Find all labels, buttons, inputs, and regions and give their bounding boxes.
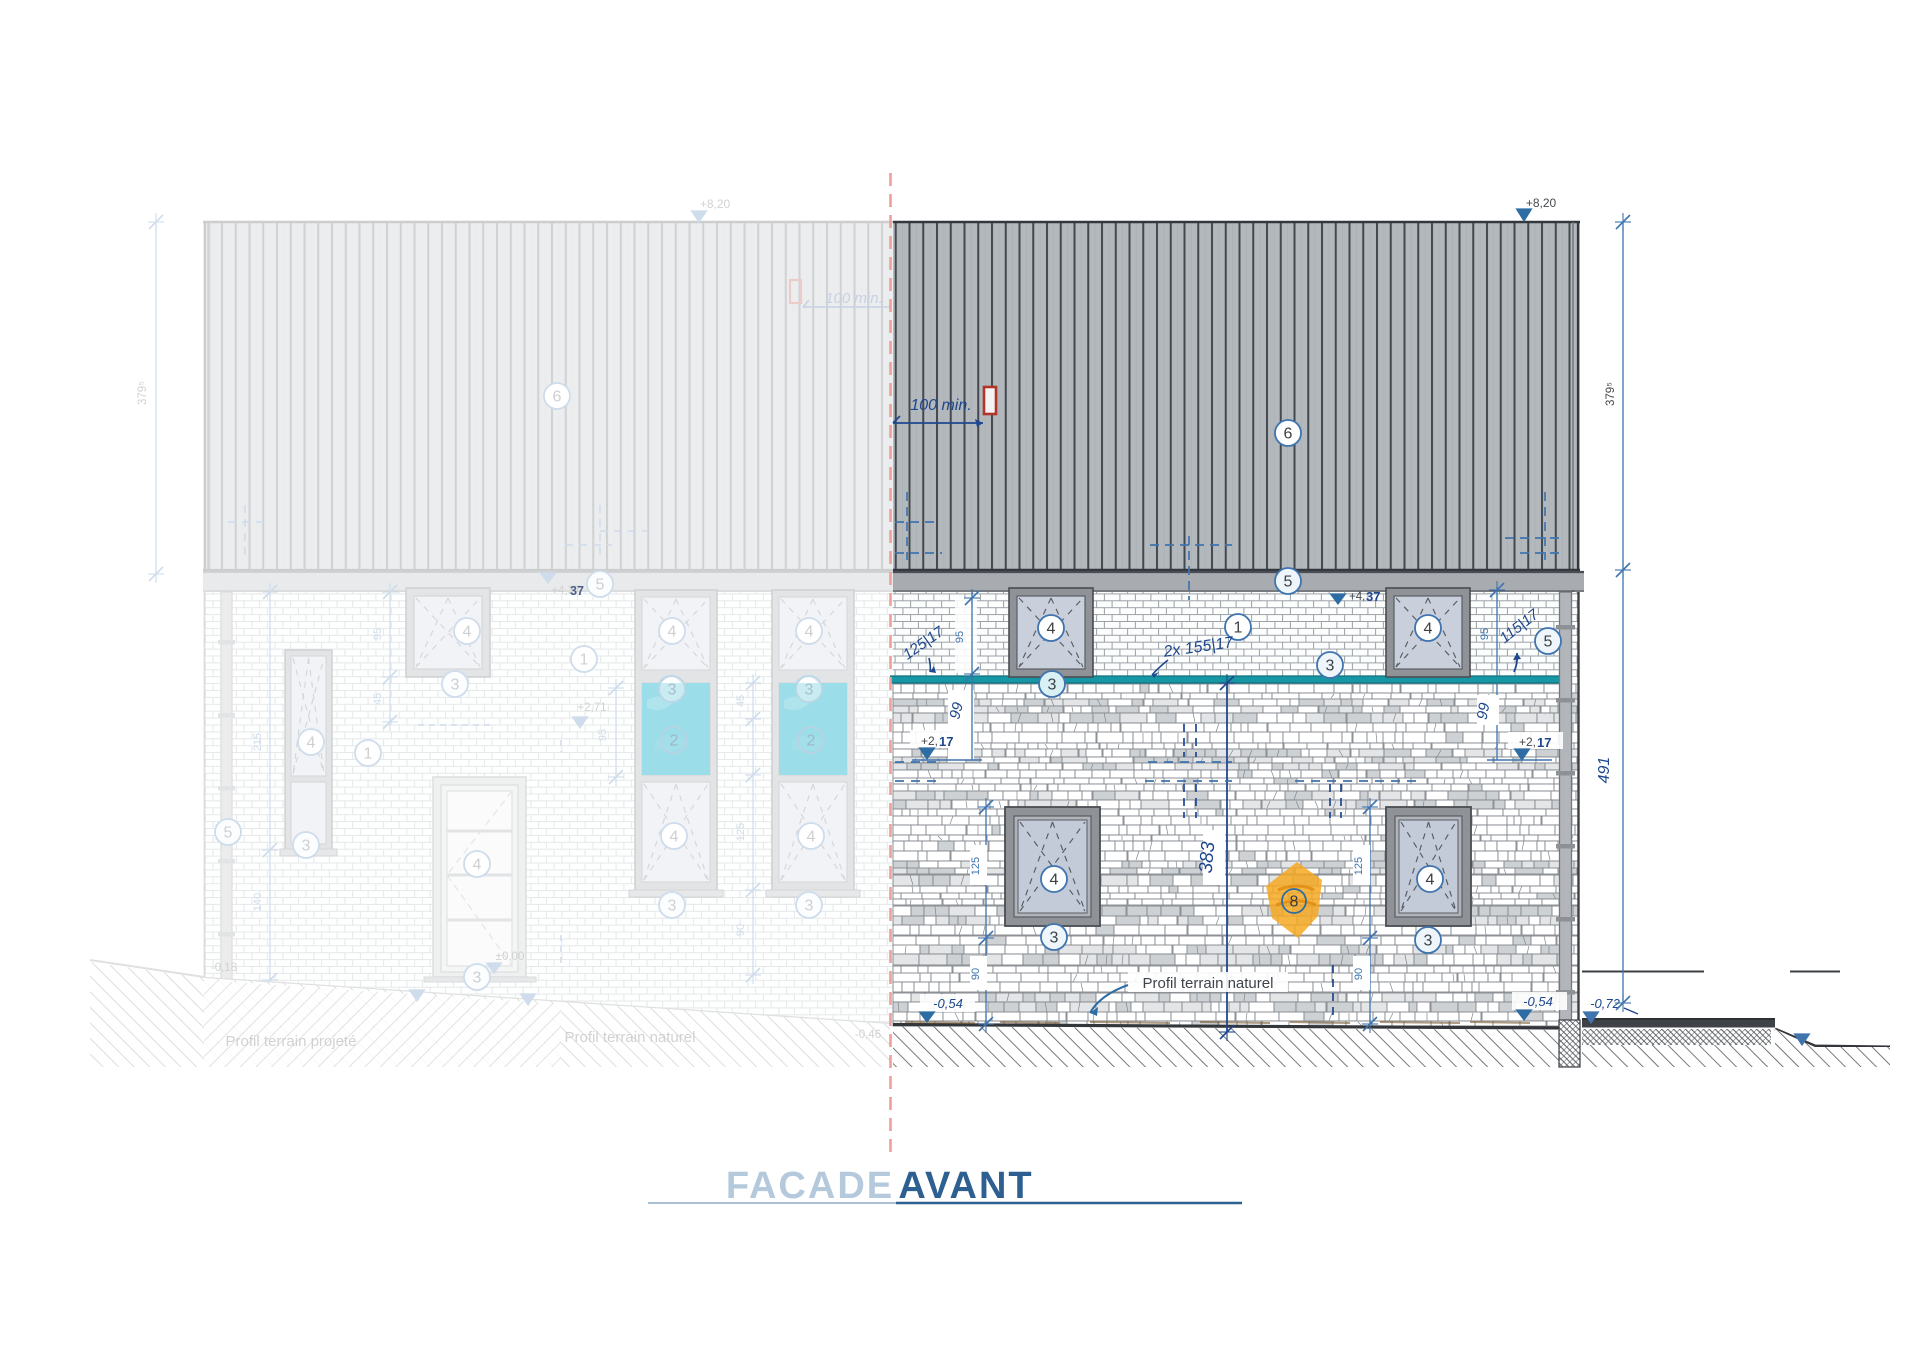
svg-text:FACADE: FACADE — [726, 1165, 894, 1207]
svg-text:-0,54: -0,54 — [933, 996, 963, 1011]
svg-text:4: 4 — [1424, 621, 1433, 638]
svg-text:Profil terrain naturel: Profil terrain naturel — [1143, 975, 1274, 992]
svg-text:37: 37 — [570, 584, 584, 598]
svg-text:4: 4 — [1426, 872, 1435, 889]
svg-text:5: 5 — [1544, 634, 1553, 651]
svg-text:8: 8 — [1290, 894, 1299, 911]
svg-text:4: 4 — [1050, 872, 1059, 889]
svg-text:17: 17 — [939, 734, 953, 749]
svg-text:6: 6 — [1284, 426, 1293, 443]
svg-text:5: 5 — [1284, 574, 1293, 591]
svg-text:90: 90 — [970, 968, 982, 980]
svg-text:4: 4 — [1047, 621, 1056, 638]
svg-text:2: 2 — [670, 733, 679, 750]
svg-text:90: 90 — [1353, 968, 1365, 980]
svg-text:+8,20: +8,20 — [1526, 196, 1557, 210]
svg-text:3: 3 — [1048, 677, 1057, 694]
svg-text:3: 3 — [805, 682, 814, 699]
svg-text:3: 3 — [668, 682, 677, 699]
svg-text:125: 125 — [1353, 857, 1365, 875]
svg-text:95: 95 — [954, 631, 966, 643]
svg-text:95: 95 — [1479, 628, 1491, 640]
svg-text:37: 37 — [1366, 589, 1380, 604]
svg-text:+2,: +2, — [1519, 735, 1536, 749]
svg-text:1: 1 — [1234, 620, 1243, 637]
svg-text:379⁵: 379⁵ — [1605, 382, 1617, 406]
svg-text:+4,: +4, — [1349, 591, 1365, 603]
svg-text:383: 383 — [1196, 840, 1220, 874]
svg-text:3: 3 — [1326, 658, 1335, 675]
svg-text:+2,: +2, — [921, 734, 938, 748]
svg-text:3: 3 — [1424, 933, 1433, 950]
svg-text:491: 491 — [1596, 757, 1613, 784]
svg-text:125: 125 — [970, 857, 982, 875]
svg-text:2: 2 — [807, 733, 816, 750]
svg-text:AVANT: AVANT — [898, 1165, 1033, 1207]
svg-text:17: 17 — [1537, 735, 1551, 750]
svg-text:100 min.: 100 min. — [910, 397, 971, 414]
svg-text:3: 3 — [1050, 930, 1059, 947]
svg-text:-0,54: -0,54 — [1523, 994, 1553, 1009]
